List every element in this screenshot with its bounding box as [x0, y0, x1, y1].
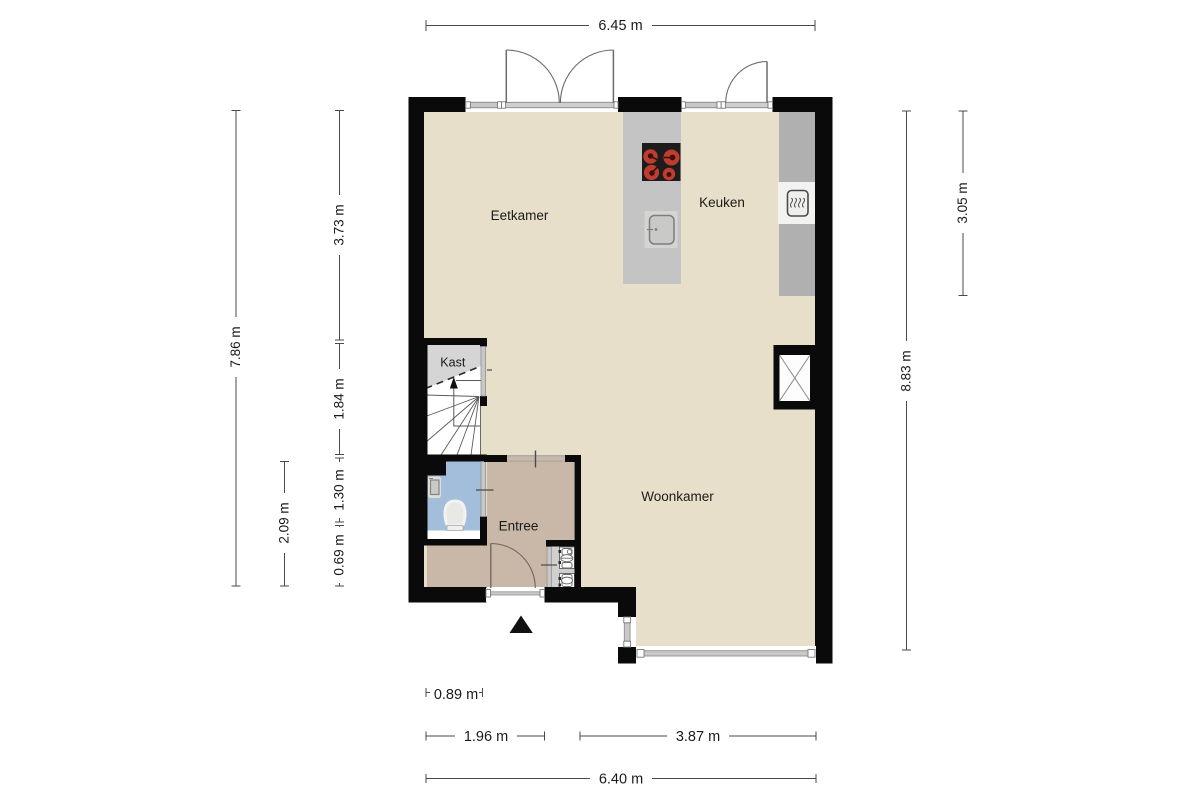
svg-text:Keuken: Keuken: [699, 195, 745, 210]
svg-text:0.69 m: 0.69 m: [332, 534, 347, 575]
svg-text:6.45 m: 6.45 m: [598, 18, 642, 34]
svg-text:3.73 m: 3.73 m: [332, 204, 347, 245]
svg-text:3.87 m: 3.87 m: [676, 729, 720, 745]
svg-text:1.96 m: 1.96 m: [464, 729, 508, 745]
svg-text:Eetkamer: Eetkamer: [491, 208, 549, 223]
svg-text:2.09 m: 2.09 m: [277, 502, 292, 543]
svg-text:1.30 m: 1.30 m: [332, 469, 347, 510]
svg-text:Kast: Kast: [440, 356, 466, 370]
svg-text:1.84 m: 1.84 m: [332, 378, 347, 419]
svg-text:8.83 m: 8.83 m: [899, 350, 914, 391]
svg-text:Woonkamer: Woonkamer: [641, 489, 714, 504]
svg-text:3.05 m: 3.05 m: [955, 182, 970, 223]
svg-text:0.89 m: 0.89 m: [434, 687, 478, 703]
svg-text:Entree: Entree: [499, 519, 539, 534]
svg-text:7.86 m: 7.86 m: [228, 326, 243, 367]
svg-text:6.40 m: 6.40 m: [599, 772, 643, 788]
